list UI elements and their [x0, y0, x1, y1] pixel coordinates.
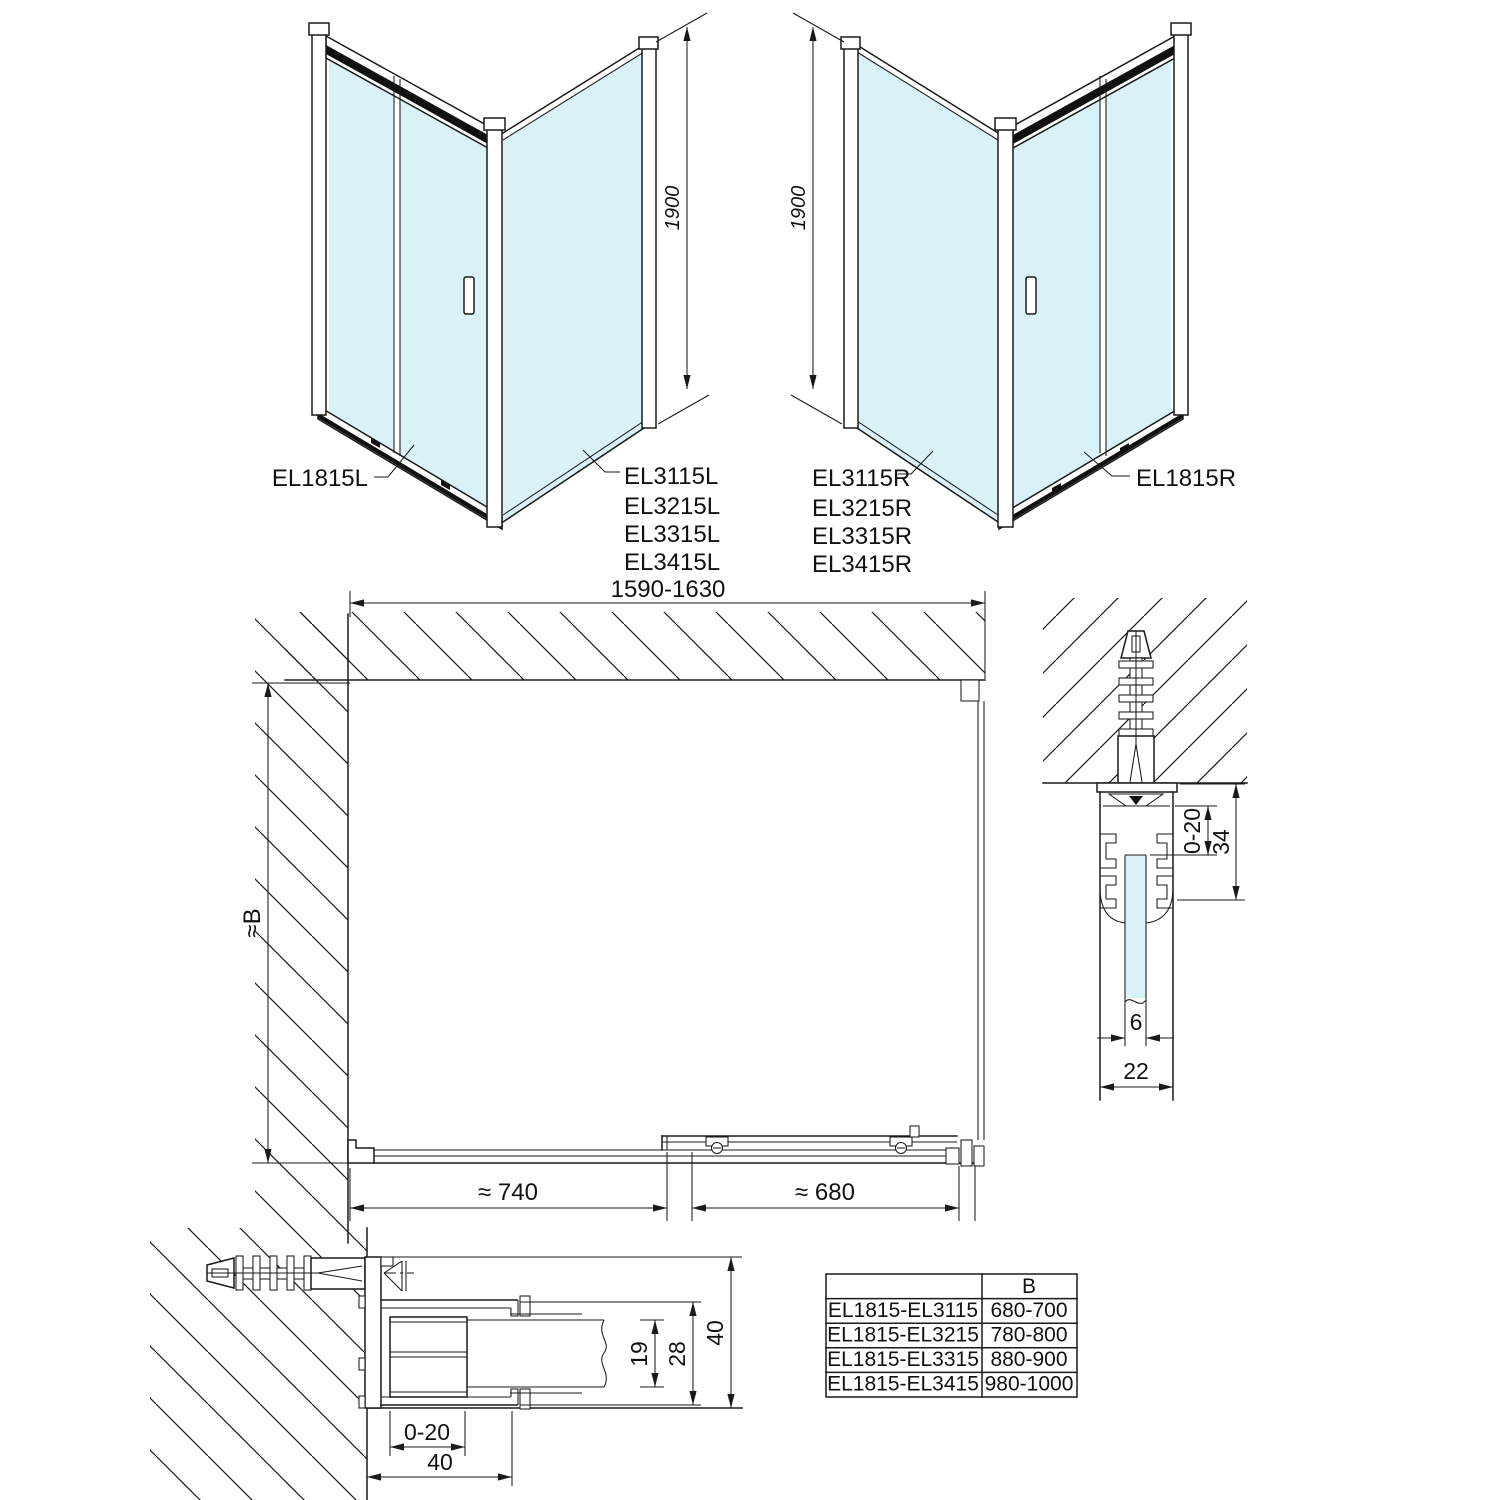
- table-header-b: B: [1022, 1275, 1036, 1298]
- glass-panel: [1125, 855, 1146, 998]
- plan-top-wall: [285, 612, 985, 680]
- side-panel-end-post: [844, 45, 858, 428]
- right-height-dimension: 1900: [788, 13, 844, 424]
- door-profile-body: [359, 1257, 606, 1409]
- size-table: B EL1815-EL3115 680-700 EL1815-EL3215 78…: [826, 1274, 1077, 1397]
- table-row1-models: EL1815-EL3115: [828, 1299, 978, 1322]
- plan-wall-profile: [348, 1140, 374, 1163]
- side-panel-end-post: [642, 45, 656, 428]
- wall-profile-dims: 0-20 34 6 22: [1097, 784, 1245, 1087]
- table-row2-models: EL1815-EL3215: [827, 1324, 979, 1347]
- door-glass-dim-text: 19: [626, 1341, 652, 1367]
- left-height-dim-text: 1900: [662, 186, 684, 231]
- left-3d-view: 1900 EL1815L EL3115L EL3215L EL3315L EL3…: [272, 13, 720, 576]
- plan-depth-dim-text: ≈B: [239, 908, 266, 937]
- plan-sliding-panel: [662, 1126, 957, 1154]
- corner-post: [487, 126, 502, 527]
- plan-wall-bracket: [961, 680, 979, 701]
- door-width-dim-text: 40: [427, 1449, 453, 1475]
- plan-door-dim-text: ≈ 680: [795, 1179, 855, 1206]
- right-door-label: EL1815R: [1136, 465, 1236, 492]
- door-inner-dim-text: 28: [664, 1341, 690, 1367]
- right-3d-view: 1900 EL3115R EL3215R EL3315R EL3415R EL1…: [788, 13, 1236, 578]
- plan-view: 1590-1630 ≈B: [239, 576, 985, 1243]
- plan-corner-connector: [946, 1140, 984, 1221]
- left-side-label-2: EL3215L: [624, 493, 720, 520]
- plan-door-stopper: [910, 1126, 919, 1137]
- plan-left-wall: [255, 612, 348, 1228]
- wall-profile-body: [1097, 783, 1177, 1100]
- wall-glass-dim-text: 6: [1130, 1009, 1143, 1035]
- table-row3-b: 880-900: [990, 1348, 1067, 1371]
- door-profile-section: 19 28 40 0-20 40: [150, 1228, 742, 1500]
- left-side-label-3: EL3315L: [624, 521, 720, 548]
- technical-drawing-page: 1900 EL1815L EL3115L EL3215L EL3315L EL3…: [0, 0, 1500, 1500]
- table-row4-models: EL1815-EL3415: [827, 1373, 979, 1396]
- wall-width-dim-text: 22: [1123, 1058, 1149, 1084]
- plan-door-dimension: ≈ 680: [692, 1179, 959, 1208]
- door-adjust-dim-text: 0-20: [404, 1419, 450, 1445]
- left-door-label: EL1815L: [272, 465, 368, 492]
- table-row1-b: 680-700: [990, 1299, 1067, 1322]
- corner-post: [998, 126, 1013, 527]
- door-handle: [464, 277, 474, 314]
- left-side-label-1: EL3115L: [624, 463, 718, 490]
- wall-depth-dim-text: 34: [1208, 829, 1234, 855]
- right-side-label-3: EL3315R: [812, 523, 912, 550]
- door-handle: [1026, 277, 1036, 314]
- glass-break-symbol: [602, 1320, 607, 1387]
- right-side-label-1: EL3115R: [812, 465, 910, 492]
- table-row3-models: EL1815-EL3315: [827, 1348, 979, 1371]
- table-row4-b: 980-1000: [985, 1373, 1074, 1396]
- right-side-label-2: EL3215R: [812, 495, 912, 522]
- shower-enclosure-drawing: 1900 EL1815L EL3115L EL3215L EL3315L EL3…: [0, 0, 1500, 1500]
- plan-width-dim-text: 1590-1630: [611, 576, 726, 603]
- left-side-label-4: EL3415L: [624, 549, 720, 576]
- wall-profile-section: 0-20 34 6 22: [1043, 598, 1247, 1100]
- door-wall-post: [312, 30, 326, 415]
- wall-adjust-dim-text: 0-20: [1179, 808, 1205, 854]
- left-height-dimension: 1900: [656, 13, 709, 424]
- door-height-dim-text: 40: [702, 1320, 728, 1346]
- right-height-dim-text: 1900: [788, 186, 810, 231]
- right-side-label-4: EL3415R: [812, 551, 912, 578]
- table-row2-b: 780-800: [990, 1324, 1067, 1347]
- door-wall-post: [1174, 30, 1188, 415]
- plan-fixed-dim-text: ≈ 740: [478, 1179, 538, 1206]
